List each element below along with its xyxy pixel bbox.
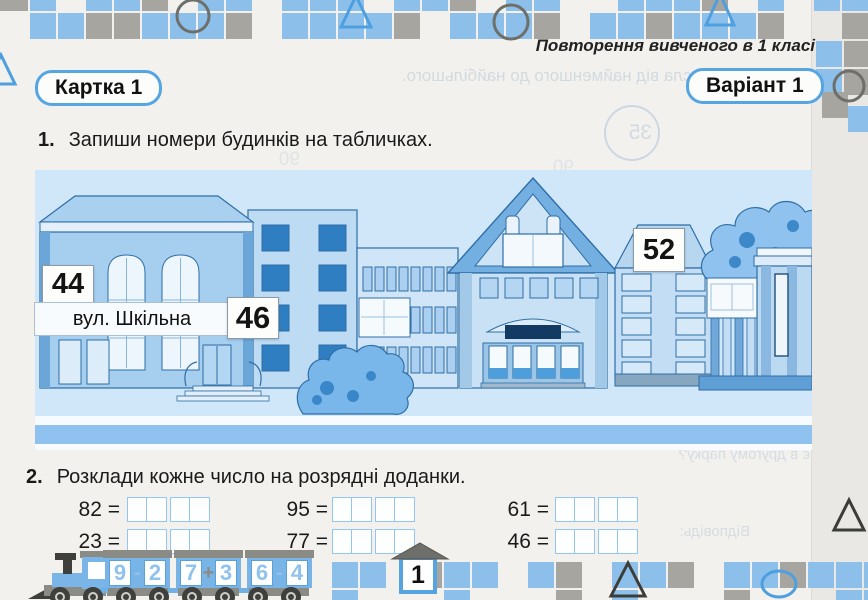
worksheet-page: числа від найменшого до найбільшого. є в…	[0, 0, 868, 600]
answer-boxes-61[interactable]	[555, 497, 638, 522]
mosaic-square	[612, 590, 638, 600]
train-wheel	[83, 587, 103, 600]
mosaic-square	[836, 562, 862, 588]
mosaic-square	[724, 590, 750, 600]
mosaic-square	[478, 13, 504, 39]
train-car-roof	[174, 550, 243, 558]
page-number: 1	[399, 556, 437, 594]
task2-number: 2.	[26, 466, 43, 488]
mosaic-square	[142, 0, 168, 11]
answer-boxes-77[interactable]	[332, 529, 415, 554]
car-digit: 9	[109, 560, 131, 586]
car-digit: 4	[286, 560, 308, 586]
answer-cell[interactable]	[127, 497, 147, 522]
task1-number: 1.	[38, 129, 55, 151]
train-wheel	[215, 587, 235, 600]
answer-cell[interactable]	[375, 529, 395, 554]
mosaic-square	[556, 590, 582, 600]
mosaic-square	[668, 562, 694, 588]
mosaic-square	[758, 0, 784, 11]
answer-cell[interactable]	[598, 529, 618, 554]
equation-label-61: 61 =	[487, 497, 549, 522]
answer-cell[interactable]	[618, 529, 638, 554]
train-car-1: 9 - 2	[105, 558, 170, 588]
answer-cell[interactable]	[395, 497, 415, 522]
answer-cell[interactable]	[170, 497, 190, 522]
answer-cell[interactable]	[332, 497, 352, 522]
mosaic-square	[282, 13, 308, 39]
mosaic-square	[816, 41, 842, 67]
mosaic-square	[226, 13, 252, 39]
answer-boxes-95[interactable]	[332, 497, 415, 522]
mosaic-square	[360, 562, 386, 588]
mosaic-square	[506, 0, 532, 11]
car-operator: -	[276, 562, 283, 585]
answer-cell[interactable]	[147, 497, 167, 522]
mosaic-square	[338, 0, 364, 11]
car-digit: 2	[144, 560, 166, 586]
equation-label-82: 82 =	[58, 497, 120, 522]
answer-boxes-82[interactable]	[127, 497, 210, 522]
car-operator: -	[134, 562, 141, 585]
mosaic-square	[226, 0, 252, 11]
mosaic-square	[618, 0, 644, 11]
show-through-text: числа від найменшого до найбільшого.	[95, 66, 710, 86]
mosaic-square	[534, 0, 560, 11]
task2-text: Розклади кожне число на розрядні доданки…	[57, 466, 466, 488]
answer-cell[interactable]	[555, 529, 575, 554]
variant-badge: Варіант 1	[686, 68, 824, 104]
locomotive-funnel-stem	[63, 558, 72, 574]
mosaic-square	[282, 0, 308, 11]
mosaic-square	[86, 13, 112, 39]
train-wheel	[50, 587, 70, 600]
mosaic-square	[30, 13, 56, 39]
mosaic-square	[394, 13, 420, 39]
house-number-plate-44: 44	[42, 265, 94, 304]
mosaic-square	[170, 13, 196, 39]
mosaic-square	[556, 562, 582, 588]
mosaic-square	[640, 562, 666, 588]
answer-boxes-46[interactable]	[555, 529, 638, 554]
mosaic-square	[332, 562, 358, 588]
show-through-number: 35	[612, 121, 652, 145]
train-car-roof	[245, 550, 314, 558]
answer-cell[interactable]	[332, 529, 352, 554]
mosaic-square	[472, 562, 498, 588]
train-coupler	[239, 588, 249, 593]
task2-line: 2.Розклади кожне число на розрядні додан…	[26, 466, 466, 489]
train-wheel	[116, 587, 136, 600]
mosaic-square	[394, 0, 420, 11]
answer-cell[interactable]	[598, 497, 618, 522]
mosaic-square	[808, 562, 834, 588]
show-through-number: 90	[268, 149, 300, 171]
answer-cell[interactable]	[375, 497, 395, 522]
task1-text: Запиши номери будинків на табличках.	[69, 129, 433, 151]
train-wheel	[248, 587, 268, 600]
mosaic-square	[422, 0, 448, 11]
mosaic-square	[674, 0, 700, 11]
street-scene-illustration: 44 вул. Шкільна 46 52	[35, 170, 812, 450]
mosaic-square	[646, 0, 672, 11]
answer-cell[interactable]	[352, 529, 372, 554]
mosaic-square	[338, 13, 364, 39]
mosaic-square	[310, 0, 336, 11]
mosaic-square	[836, 590, 862, 600]
train-car-roof	[103, 550, 172, 558]
car-digit: 6	[251, 560, 273, 586]
mosaic-square	[142, 13, 168, 39]
house-number-plate-46: 46	[227, 297, 279, 339]
equation-label-95: 95 =	[266, 497, 328, 522]
card-badge: Картка 1	[35, 70, 162, 106]
mosaic-square	[366, 13, 392, 39]
mosaic-square	[30, 0, 56, 11]
answer-cell[interactable]	[575, 529, 595, 554]
mosaic-square	[0, 0, 12, 11]
train-wheel	[182, 587, 202, 600]
mosaic-square	[822, 92, 848, 118]
mosaic-square	[842, 13, 868, 39]
mosaic-square	[612, 562, 638, 588]
train-coupler	[168, 588, 178, 593]
equation-label-46: 46 =	[487, 529, 549, 554]
mosaic-square	[444, 562, 470, 588]
mosaic-square	[780, 562, 806, 588]
answer-cell[interactable]	[555, 497, 575, 522]
mosaic-square	[310, 13, 336, 39]
mosaic-square	[752, 562, 778, 588]
mosaic-square	[848, 106, 868, 132]
mosaic-square	[528, 562, 554, 588]
show-through-text: Відповідь:	[655, 523, 750, 540]
mosaic-square	[198, 0, 224, 11]
train-wheel	[149, 587, 169, 600]
mosaic-square	[506, 13, 532, 39]
mosaic-square	[702, 0, 728, 11]
car-digit: 7	[180, 560, 202, 586]
page-topic: Повторення вивченого в 1 класі	[536, 36, 815, 56]
mosaic-square	[814, 0, 840, 11]
mosaic-square	[844, 41, 868, 67]
mosaic-square	[444, 590, 470, 600]
answer-cell[interactable]	[395, 529, 415, 554]
mosaic-square	[864, 562, 868, 588]
mosaic-square	[842, 0, 868, 11]
task1-line: 1.Запиши номери будинків на табличках.	[38, 129, 433, 152]
mosaic-square	[86, 0, 112, 11]
mosaic-square	[332, 590, 358, 600]
mosaic-square	[114, 0, 140, 11]
answer-cell[interactable]	[575, 497, 595, 522]
answer-cell[interactable]	[190, 497, 210, 522]
mosaic-square	[198, 13, 224, 39]
train-car-2: 7 + 3	[176, 558, 241, 588]
answer-cell[interactable]	[352, 497, 372, 522]
mosaic-square	[864, 590, 868, 600]
mosaic-square	[58, 13, 84, 39]
mosaic-square	[724, 562, 750, 588]
mosaic-square	[450, 0, 476, 11]
train-wheel	[281, 587, 301, 600]
answer-cell[interactable]	[618, 497, 638, 522]
locomotive-boiler	[52, 573, 83, 587]
train-car-3: 6 - 4	[247, 558, 312, 588]
car-digit: 3	[215, 560, 237, 586]
street-sign: вул. Шкільна	[34, 302, 230, 336]
house-number-plate-52: 52	[633, 228, 685, 272]
car-operator: +	[203, 562, 215, 585]
mosaic-square	[114, 13, 140, 39]
mosaic-square	[450, 13, 476, 39]
